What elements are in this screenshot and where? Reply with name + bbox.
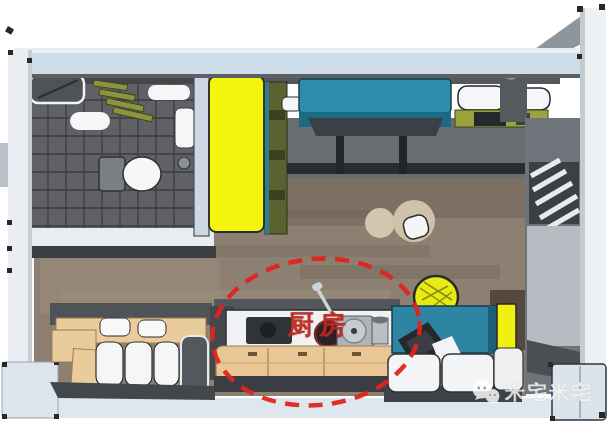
staircase: [529, 160, 579, 228]
kitchen-cabinet: [216, 346, 398, 380]
bathroom-cabinet: [175, 108, 195, 148]
kitchen-label: 厨房: [287, 311, 351, 338]
watermark: 米宅米宅: [471, 379, 593, 405]
floorplan-image: 厨房 米宅米宅: [0, 0, 609, 423]
sofa-bed: [50, 303, 215, 400]
toilet: [99, 157, 161, 191]
watermark-text: 米宅米宅: [505, 382, 593, 402]
bottom-left-corner-column: [2, 362, 58, 418]
floor-drain: [178, 157, 190, 169]
hallway-floor: [527, 226, 580, 346]
bathroom-shelf: [148, 85, 190, 100]
bathroom: [28, 60, 216, 258]
bathroom-bottom-wall: [28, 228, 214, 248]
cooking-pot: [372, 317, 388, 345]
partition-wall: [194, 64, 209, 236]
wardrobe: [209, 76, 264, 232]
table-end-cabinet: [497, 304, 516, 352]
sofa-cushions: [96, 342, 179, 386]
bathroom-sink: [70, 112, 110, 130]
washing-machine: [30, 75, 84, 103]
wechat-icon: [471, 379, 501, 405]
apartment-3d-floorplan: [0, 0, 609, 423]
bathroom-wall-shadow: [28, 246, 216, 258]
